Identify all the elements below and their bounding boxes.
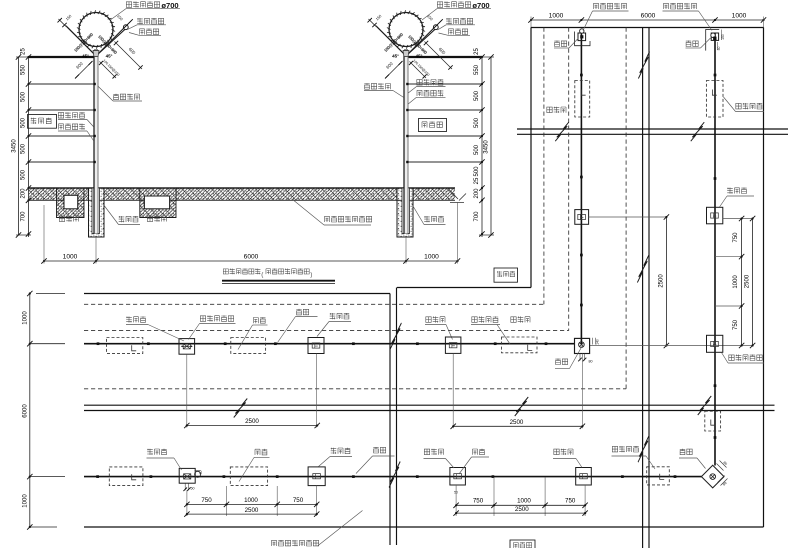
svg-text:2500: 2500 <box>510 419 524 426</box>
svg-text:1000: 1000 <box>733 275 739 289</box>
svg-text:550: 550 <box>474 64 480 75</box>
svg-text:500: 500 <box>21 117 27 128</box>
svg-text:50: 50 <box>199 471 203 475</box>
svg-text:500: 500 <box>21 169 27 180</box>
svg-text:500: 500 <box>21 91 27 102</box>
svg-text:25: 25 <box>474 48 480 55</box>
svg-text:2500: 2500 <box>515 506 529 513</box>
svg-text:1000: 1000 <box>732 12 747 19</box>
svg-text:50: 50 <box>717 47 721 51</box>
svg-text:700: 700 <box>21 211 27 222</box>
svg-text:2500: 2500 <box>245 507 259 514</box>
svg-text:1000: 1000 <box>244 497 258 504</box>
svg-text:2500: 2500 <box>745 274 751 288</box>
svg-text:6000: 6000 <box>244 253 259 260</box>
svg-text:): ) <box>310 271 312 278</box>
svg-text:6000: 6000 <box>22 404 28 418</box>
svg-text:500: 500 <box>474 90 480 101</box>
svg-text:6000: 6000 <box>641 12 656 19</box>
svg-text:ø700: ø700 <box>161 1 178 10</box>
svg-text:200: 200 <box>21 188 27 199</box>
svg-text:750: 750 <box>565 497 576 504</box>
svg-text:150: 150 <box>721 34 725 40</box>
svg-text:500: 500 <box>474 117 480 128</box>
svg-text:45°: 45° <box>82 54 89 59</box>
svg-text:500: 500 <box>474 144 480 155</box>
svg-text:1000: 1000 <box>63 253 78 260</box>
svg-text:700: 700 <box>474 211 480 222</box>
svg-text:500: 500 <box>21 143 27 154</box>
svg-text:1000: 1000 <box>22 311 28 325</box>
svg-text:45°: 45° <box>106 54 113 59</box>
svg-text:1000: 1000 <box>517 497 531 504</box>
svg-text:750: 750 <box>473 497 484 504</box>
svg-text:2500: 2500 <box>659 274 665 288</box>
svg-text:140: 140 <box>595 339 599 345</box>
svg-text:25: 25 <box>21 48 27 55</box>
svg-text:45°: 45° <box>392 54 399 59</box>
svg-text:550: 550 <box>21 64 27 75</box>
svg-text:3450: 3450 <box>484 140 490 154</box>
svg-text:45°: 45° <box>416 54 423 59</box>
svg-text:750: 750 <box>733 319 739 330</box>
svg-text:200: 200 <box>474 188 480 199</box>
svg-text:ø700: ø700 <box>472 1 489 10</box>
svg-text:25: 25 <box>474 177 480 184</box>
svg-text:3450: 3450 <box>12 139 18 153</box>
svg-text:50: 50 <box>191 487 195 491</box>
svg-text:2500: 2500 <box>245 418 259 425</box>
svg-text:750: 750 <box>201 497 212 504</box>
svg-text:1000: 1000 <box>424 253 439 260</box>
svg-text:1000: 1000 <box>22 494 28 508</box>
svg-text:80: 80 <box>589 360 593 364</box>
svg-text:500: 500 <box>474 166 480 177</box>
svg-text:750: 750 <box>293 497 304 504</box>
svg-text:1000: 1000 <box>549 12 564 19</box>
svg-text:750: 750 <box>733 232 739 243</box>
